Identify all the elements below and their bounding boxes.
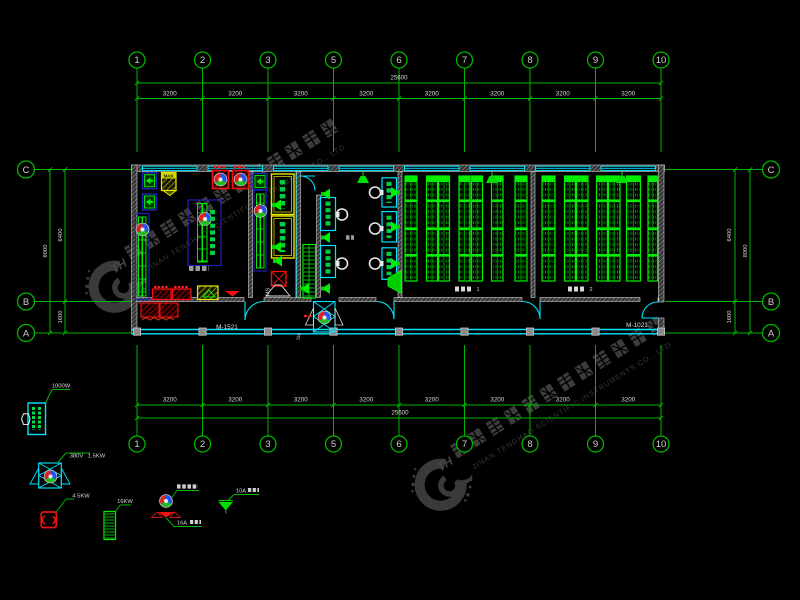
svg-text:6400: 6400 bbox=[727, 229, 733, 242]
svg-text:3200: 3200 bbox=[556, 397, 571, 404]
svg-text:8000: 8000 bbox=[43, 245, 49, 258]
svg-text:3200: 3200 bbox=[621, 397, 636, 404]
svg-text:6400: 6400 bbox=[58, 229, 64, 242]
svg-text:1: 1 bbox=[476, 287, 479, 293]
svg-text:1600: 1600 bbox=[58, 311, 64, 324]
svg-text:C: C bbox=[23, 165, 30, 176]
svg-text:7: 7 bbox=[462, 55, 467, 66]
svg-text:10A: 10A bbox=[236, 489, 246, 495]
svg-text:380V: 380V bbox=[70, 453, 84, 459]
svg-text:1.5KW: 1.5KW bbox=[88, 453, 106, 459]
svg-text:3200: 3200 bbox=[228, 397, 243, 404]
svg-text:7: 7 bbox=[462, 439, 467, 450]
svg-text:5: 5 bbox=[331, 55, 336, 66]
svg-text:6: 6 bbox=[396, 55, 401, 66]
svg-text:8000: 8000 bbox=[743, 245, 749, 258]
svg-text:2: 2 bbox=[589, 287, 592, 293]
svg-text:B: B bbox=[768, 297, 774, 308]
svg-text:10: 10 bbox=[656, 55, 667, 66]
svg-text:9: 9 bbox=[593, 439, 598, 450]
svg-text:3: 3 bbox=[265, 439, 270, 450]
svg-text:M-1021: M-1021 bbox=[626, 322, 648, 329]
svg-text:1: 1 bbox=[134, 55, 139, 66]
svg-text:3200: 3200 bbox=[490, 397, 505, 404]
svg-text:MAK: MAK bbox=[164, 174, 175, 179]
svg-text:2: 2 bbox=[200, 55, 205, 66]
svg-text:3200: 3200 bbox=[556, 91, 571, 98]
svg-text:C: C bbox=[768, 165, 775, 176]
svg-text:3: 3 bbox=[265, 55, 270, 66]
svg-text:1: 1 bbox=[134, 439, 139, 450]
svg-text:4.5KW: 4.5KW bbox=[72, 494, 90, 500]
svg-text:3200: 3200 bbox=[621, 91, 636, 98]
svg-text:3200: 3200 bbox=[294, 91, 309, 98]
svg-text:16KW: 16KW bbox=[117, 499, 133, 505]
svg-text:3200: 3200 bbox=[163, 91, 178, 98]
svg-text:10: 10 bbox=[656, 439, 667, 450]
svg-text:3200: 3200 bbox=[228, 91, 243, 98]
svg-text:25600: 25600 bbox=[391, 410, 409, 417]
svg-text:3200: 3200 bbox=[359, 397, 374, 404]
svg-text:5: 5 bbox=[331, 439, 336, 450]
svg-text:25600: 25600 bbox=[390, 75, 408, 82]
svg-text:9: 9 bbox=[593, 55, 598, 66]
svg-text:2: 2 bbox=[200, 439, 205, 450]
svg-text:B: B bbox=[23, 297, 29, 308]
svg-text:3200: 3200 bbox=[294, 397, 309, 404]
svg-text:M-1521: M-1521 bbox=[216, 324, 238, 331]
svg-text:8: 8 bbox=[527, 439, 532, 450]
svg-text:3200: 3200 bbox=[163, 397, 178, 404]
svg-text:MS: MS bbox=[266, 287, 272, 296]
svg-text:3200: 3200 bbox=[359, 91, 374, 98]
svg-text:1600: 1600 bbox=[727, 311, 733, 324]
svg-text:16A: 16A bbox=[177, 521, 187, 527]
svg-text:A: A bbox=[768, 328, 775, 339]
svg-text:3200: 3200 bbox=[425, 91, 440, 98]
svg-text:8: 8 bbox=[527, 55, 532, 66]
svg-text:A: A bbox=[23, 328, 30, 339]
svg-text:3200: 3200 bbox=[490, 91, 505, 98]
svg-text:1000W: 1000W bbox=[52, 384, 71, 390]
svg-text:6: 6 bbox=[396, 439, 401, 450]
svg-text:3200: 3200 bbox=[425, 397, 440, 404]
